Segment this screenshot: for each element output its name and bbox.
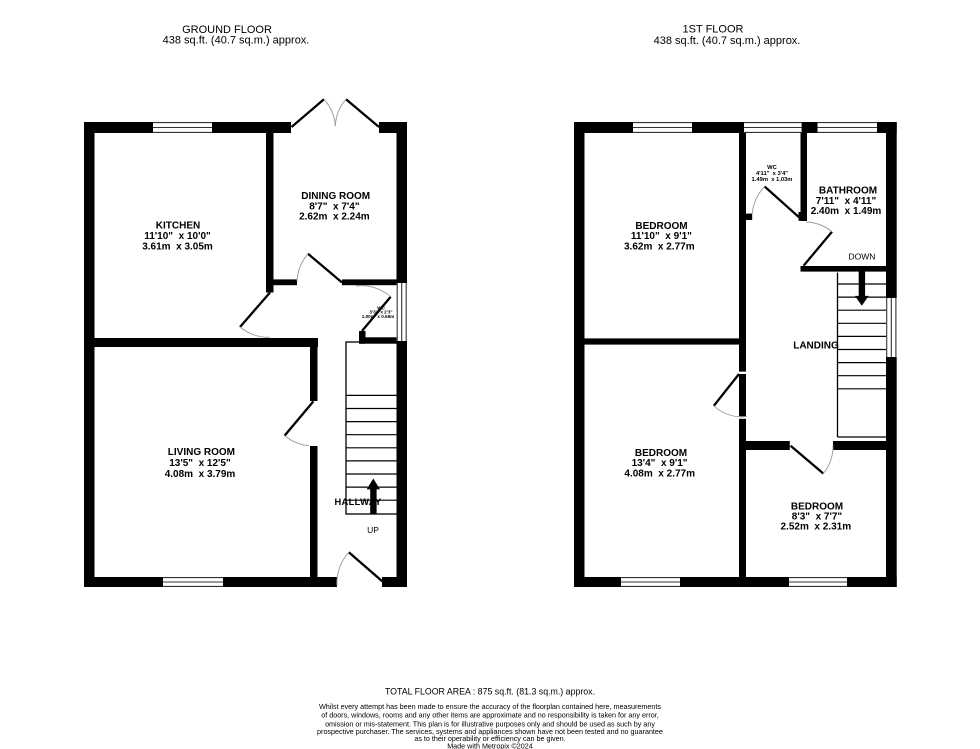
svg-text:of doors, windows, rooms and a: of doors, windows, rooms and any other i… [321,711,659,720]
svg-text:Made with Metropix ©2024: Made with Metropix ©2024 [447,741,533,749]
svg-text:438 sq.ft. (40.7 sq.m.) approx: 438 sq.ft. (40.7 sq.m.) approx. [654,35,801,47]
svg-text:1.00m x 0.68m: 1.00m x 0.68m [362,314,394,319]
svg-text:3.62m x 2.77m: 3.62m x 2.77m [624,241,695,252]
svg-text:TOTAL FLOOR AREA : 875 sq.ft.: TOTAL FLOOR AREA : 875 sq.ft. (81.3 sq.m… [385,687,595,697]
svg-text:2.62m x 2.24m: 2.62m x 2.24m [299,212,370,223]
svg-text:13'5" x 12'5": 13'5" x 12'5" [169,458,231,469]
svg-text:4.08m x 2.77m: 4.08m x 2.77m [624,469,695,480]
svg-text:438 sq.ft. (40.7 sq.m.) approx: 438 sq.ft. (40.7 sq.m.) approx. [163,35,310,47]
svg-text:1.49m x 1.03m: 1.49m x 1.03m [752,177,793,183]
svg-text:4'11" x 3'4": 4'11" x 3'4" [756,171,788,177]
svg-text:LIVING ROOM: LIVING ROOM [168,447,235,458]
svg-text:Whilst every attempt has been: Whilst every attempt has been made to en… [319,702,661,711]
svg-text:UP: UP [367,525,379,535]
svg-text:2.52m x 2.31m: 2.52m x 2.31m [780,522,851,533]
svg-text:11'10" x 10'0": 11'10" x 10'0" [144,231,211,242]
svg-text:1ST FLOOR: 1ST FLOOR [683,23,744,35]
svg-text:2.40m x 1.49m: 2.40m x 1.49m [811,206,882,217]
svg-text:4.08m x 3.79m: 4.08m x 3.79m [165,469,236,480]
svg-text:HALLWAY: HALLWAY [334,497,381,507]
svg-text:3.61m x 3.05m: 3.61m x 3.05m [142,241,213,252]
svg-text:LANDING: LANDING [793,341,839,352]
svg-text:DOWN: DOWN [849,252,876,262]
